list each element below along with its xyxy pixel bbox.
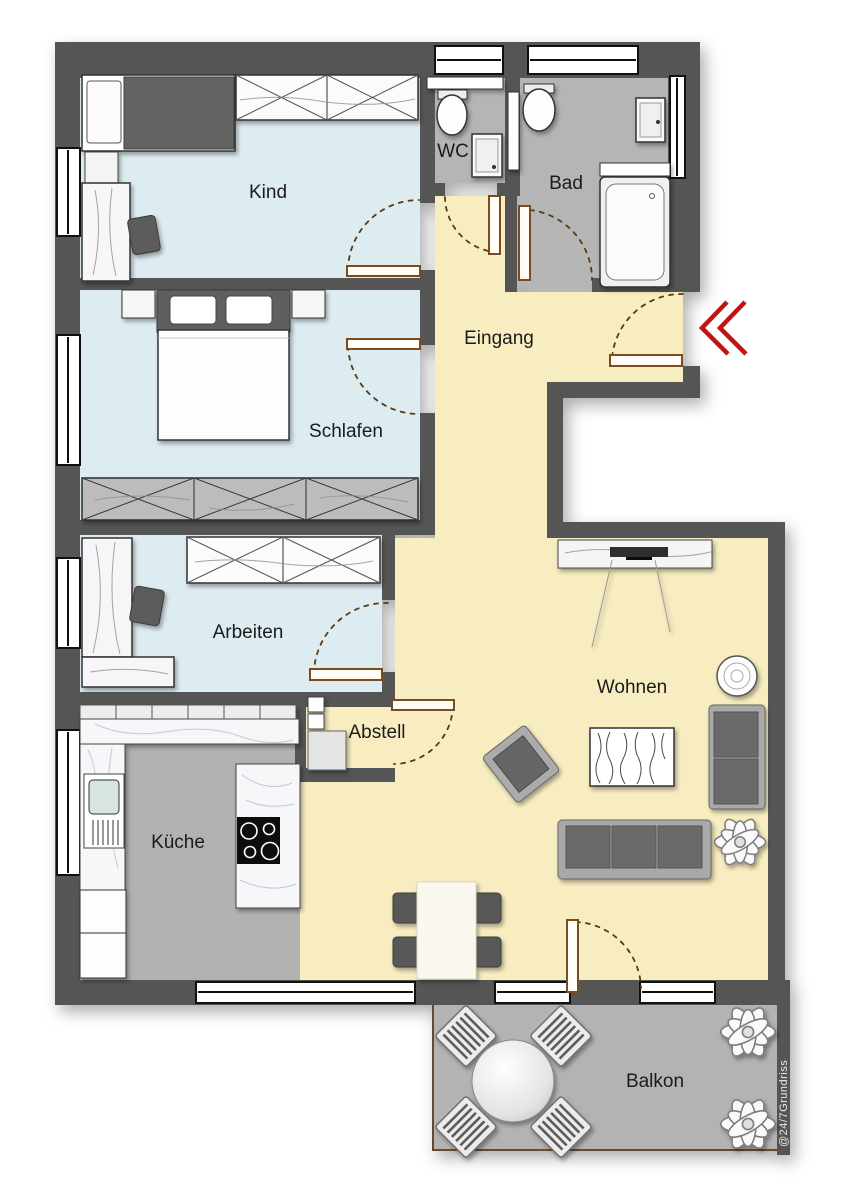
- window-wohnen-bottom-2: [640, 982, 715, 1003]
- wall-notch-top: [547, 382, 700, 398]
- wall-kind-schlafen: [80, 278, 420, 290]
- floor-plan: Kind WC Bad Eingang Schlafen Arbeiten Ab…: [0, 0, 847, 1200]
- window-wohnen-bottom-1: [495, 982, 570, 1003]
- door-leaf-wc: [489, 196, 500, 254]
- kitchen-appliance-1: [80, 890, 126, 933]
- wall-arbeiten-right-a: [382, 520, 395, 600]
- abstell-shelf-2: [308, 714, 324, 729]
- kitchen-sink: [84, 774, 124, 848]
- wall-mid-vert-c: [420, 413, 435, 535]
- bad-toilet: [523, 84, 555, 131]
- schlafen-wardrobe: [82, 478, 418, 520]
- door-leaf-kind: [347, 266, 420, 276]
- door-leaf-abstell: [392, 700, 454, 710]
- dining-chair-4: [474, 937, 501, 967]
- kind-shelf: [85, 152, 118, 183]
- kitchen-counter-top: [80, 719, 299, 744]
- side-table-round: [717, 656, 757, 696]
- entrance-arrow-icon: [702, 302, 746, 354]
- room-label-balkon: Balkon: [626, 1071, 684, 1092]
- bathtub: [600, 177, 670, 287]
- hall-corridor: [435, 382, 547, 538]
- cooktop: [237, 817, 280, 864]
- wall-schlafen-arbeiten: [55, 520, 435, 535]
- wall-wc-bottom-left: [420, 183, 445, 196]
- wall-mid-vert-a: [420, 42, 435, 203]
- room-label-schlafen: Schlafen: [309, 421, 383, 442]
- door-leaf-arbeiten: [310, 669, 382, 680]
- balcony-table: [472, 1040, 554, 1122]
- window-wc: [435, 46, 503, 74]
- window-bad-top: [528, 46, 638, 74]
- bad-sink: [636, 98, 665, 142]
- window-bad-right: [670, 76, 685, 178]
- watermark: @24/7Grundriss: [778, 1060, 790, 1147]
- kind-desk-chair: [127, 215, 161, 255]
- room-label-kind: Kind: [249, 182, 287, 203]
- coffee-table: [590, 728, 674, 786]
- window-arbeiten: [57, 558, 80, 648]
- kind-bed: [82, 75, 235, 151]
- bad-shelf: [600, 163, 670, 176]
- wall-bottom-living: [430, 980, 790, 1005]
- dining-chair-2: [393, 937, 420, 967]
- door-leaf-bad: [519, 206, 530, 280]
- door-leaf-schlafen: [347, 339, 420, 349]
- wall-right-main: [768, 522, 785, 1005]
- kind-desk: [82, 183, 130, 281]
- window-kueche-bottom: [196, 982, 415, 1003]
- nightstand-left: [122, 290, 155, 318]
- nightstand-right: [292, 290, 325, 318]
- kind-wardrobe: [236, 75, 418, 120]
- dining-chair-1: [393, 893, 420, 923]
- dining-chair-3: [474, 893, 501, 923]
- wc-shelf: [427, 77, 503, 89]
- window-kueche: [57, 730, 80, 875]
- dining-table: [417, 882, 476, 979]
- abstell-washer: [308, 731, 346, 770]
- room-label-bad: Bad: [549, 173, 583, 194]
- wall-mid-vert-b: [420, 270, 435, 345]
- tv-sideboard: [558, 540, 715, 568]
- window-schlafen: [57, 335, 80, 465]
- wc-sink: [472, 134, 502, 177]
- room-label-wohnen: Wohnen: [597, 677, 667, 698]
- double-bed: [157, 290, 290, 440]
- room-label-wc: WC: [437, 141, 469, 162]
- wall-eingang-bad: [505, 183, 517, 292]
- room-label-kueche: Küche: [151, 832, 205, 853]
- room-label-eingang: Eingang: [464, 328, 534, 349]
- arbeiten-desk-chair: [129, 586, 165, 627]
- window-kind: [57, 148, 80, 236]
- room-label-abstell: Abstell: [348, 722, 405, 743]
- kitchen-appliance-2: [80, 933, 126, 978]
- sofa-2seat: [709, 705, 765, 809]
- wall-notch-left: [547, 382, 563, 538]
- room-label-arbeiten: Arbeiten: [213, 622, 284, 643]
- arbeiten-wardrobe: [187, 537, 380, 583]
- bad-radiator: [508, 92, 519, 170]
- abstell-shelf-1: [308, 697, 324, 712]
- kitchen-island: [236, 764, 300, 908]
- sofa-3seat: [558, 820, 711, 879]
- wall-notch-bottom: [547, 522, 785, 538]
- tv: [610, 547, 668, 557]
- wc-toilet: [437, 90, 467, 135]
- door-leaf-balkon: [567, 920, 578, 992]
- door-leaf-entrance: [610, 355, 682, 366]
- kitchen-upper-cabinets: [80, 705, 296, 719]
